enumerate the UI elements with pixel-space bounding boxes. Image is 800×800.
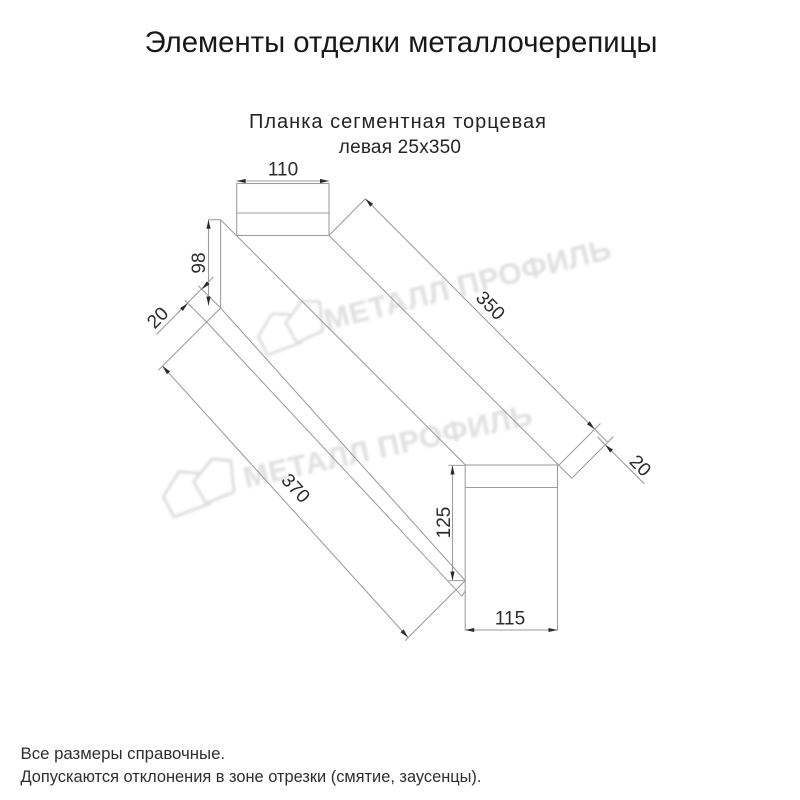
svg-text:Планка сегментная торцевая: Планка сегментная торцевая	[249, 111, 547, 133]
svg-text:левая 25x350: левая 25x350	[339, 137, 461, 158]
svg-text:125: 125	[434, 507, 455, 539]
svg-text:Элементы отделки металлочерепи: Элементы отделки металлочерепицы	[145, 26, 658, 59]
svg-text:110: 110	[268, 160, 298, 181]
svg-text:Допускаются отклонения в зоне: Допускаются отклонения в зоне отрезки (с…	[21, 768, 482, 786]
svg-text:115: 115	[495, 609, 525, 630]
svg-text:98: 98	[189, 252, 210, 273]
svg-text:Все размеры справочные.: Все размеры справочные.	[21, 744, 226, 763]
